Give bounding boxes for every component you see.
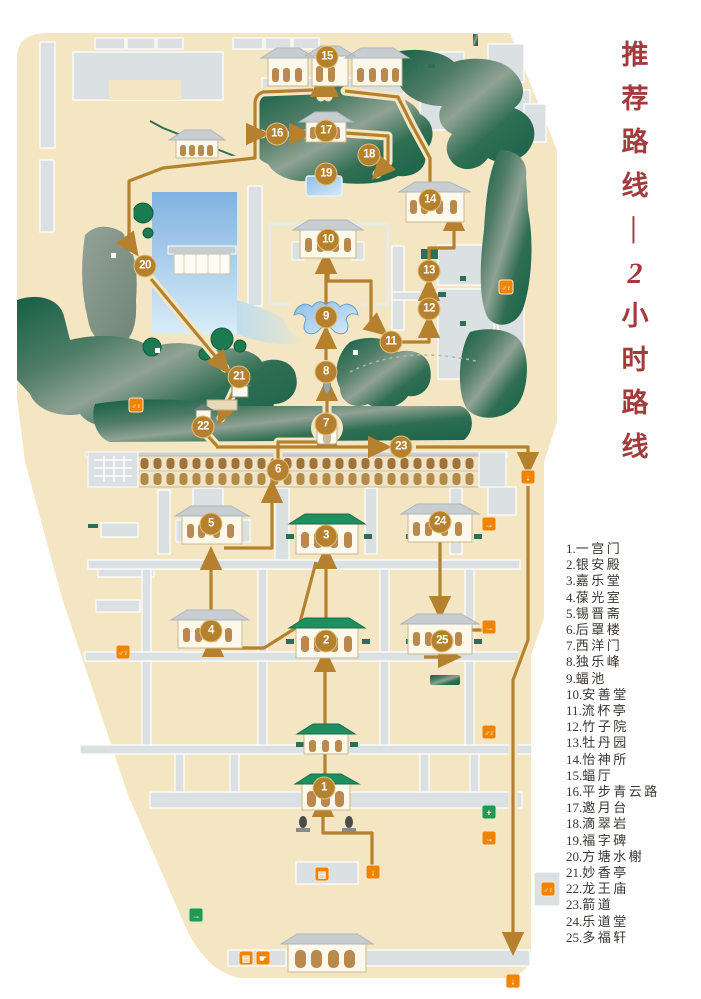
legend-item: 4.葆光室 (566, 590, 700, 606)
route-marker-7: 7 (315, 413, 338, 436)
route-marker-4: 4 (200, 620, 223, 643)
route-marker-13: 13 (418, 260, 441, 283)
legend-item: 15.蝠厅 (566, 768, 700, 784)
title-char: 小 (612, 295, 658, 339)
passage-down-icon: ↓ (521, 470, 536, 485)
route-marker-17: 17 (315, 120, 338, 143)
restroom-icon: ♂♀ (541, 882, 556, 897)
route-marker-6: 6 (267, 459, 290, 482)
restroom-icon: ♂♀ (499, 280, 514, 295)
colonnade (86, 452, 507, 487)
title-char: 时 (612, 339, 658, 383)
building-northwest-hall (169, 130, 225, 158)
legend-item: 7.西洋门 (566, 638, 700, 654)
emergency-exit-icon: → (189, 908, 204, 923)
legend-item: 22.龙王庙 (566, 881, 700, 897)
title-char: — (613, 207, 657, 253)
exit-down-icon: ↓ (506, 974, 521, 989)
restroom-icon: ♂♀ (482, 725, 497, 740)
building-lake-pavilion (168, 246, 236, 274)
title-char: 推 (612, 34, 658, 78)
garden-route-map-page: 推荐路线—2小时路线 1.一宫门2.银安殿3.嘉乐堂4.葆光室5.锡晋斋6.后罩… (0, 0, 701, 999)
route-marker-15: 15 (316, 46, 339, 69)
building-bottom-gate (281, 934, 373, 972)
legend-item: 17.邀月台 (566, 800, 700, 816)
route-marker-10: 10 (317, 229, 340, 252)
legend-item: 8.独乐峰 (566, 654, 700, 670)
title-char: 2 (612, 252, 658, 296)
route-marker-5: 5 (200, 513, 223, 536)
legend-item: 13.牡丹园 (566, 735, 700, 751)
gate-exit-icon: ↓ (366, 865, 381, 880)
legend-item: 10.安善堂 (566, 687, 700, 703)
route-marker-20: 20 (134, 255, 157, 278)
entrance-door-icon: → (482, 517, 497, 532)
route-marker-25: 25 (431, 630, 454, 653)
legend-item: 14.怡神所 (566, 752, 700, 768)
legend-item: 5.锡晋斋 (566, 606, 700, 622)
legend-item: 1.一宫门 (566, 541, 700, 557)
route-marker-12: 12 (418, 298, 441, 321)
legend-item: 19.福字碑 (566, 833, 700, 849)
route-marker-3: 3 (315, 525, 338, 548)
route-marker-22: 22 (192, 416, 215, 439)
entrance-door-icon: → (482, 620, 497, 635)
legend-item: 18.滴翠岩 (566, 816, 700, 832)
route-marker-8: 8 (315, 361, 338, 384)
route-marker-16: 16 (266, 123, 289, 146)
route-marker-2: 2 (315, 630, 338, 653)
legend: 1.一宫门2.银安殿3.嘉乐堂4.葆光室5.锡晋斋6.后罩楼7.西洋门8.独乐峰… (566, 541, 700, 946)
page-title: 推荐路线—2小时路线 (612, 34, 658, 469)
ticket-icon: ▤ (239, 951, 254, 966)
title-char: 线 (612, 165, 658, 209)
route-marker-21: 21 (228, 366, 251, 389)
legend-item: 23.箭道 (566, 897, 700, 913)
title-char: 荐 (612, 78, 658, 122)
legend-item: 25.多福轩 (566, 930, 700, 946)
legend-item: 3.嘉乐堂 (566, 573, 700, 589)
route-marker-1: 1 (313, 777, 336, 800)
legend-item: 11.流杯亭 (566, 703, 700, 719)
first-aid-icon: + (482, 805, 497, 820)
title-char: 线 (612, 426, 658, 470)
route-marker-9: 9 (315, 306, 338, 329)
route-marker-18: 18 (358, 144, 381, 167)
legend-item: 24.乐道堂 (566, 914, 700, 930)
route-marker-11: 11 (380, 331, 403, 354)
legend-item: 2.银安殿 (566, 557, 700, 573)
legend-item: 21.妙香亭 (566, 865, 700, 881)
legend-item: 12.竹子院 (566, 719, 700, 735)
legend-item: 16.平步青云路 (566, 784, 700, 800)
route-marker-23: 23 (390, 436, 413, 459)
side-door-icon: → (482, 831, 497, 846)
route-marker-14: 14 (419, 189, 442, 212)
legend-item: 20.方塘水榭 (566, 849, 700, 865)
legend-item: 6.后罩楼 (566, 622, 700, 638)
hand-icon: ☛ (256, 951, 271, 966)
restroom-icon: ♂♀ (129, 398, 144, 413)
legend-item: 9.蝠池 (566, 671, 700, 687)
title-char: 路 (612, 382, 658, 426)
building-second-gate (297, 724, 355, 754)
route-marker-19: 19 (315, 163, 338, 186)
route-marker-24: 24 (429, 511, 452, 534)
ticket-icon: ▤ (315, 867, 330, 882)
title-char: 路 (612, 121, 658, 165)
restroom-icon: ♂♀ (116, 645, 131, 660)
